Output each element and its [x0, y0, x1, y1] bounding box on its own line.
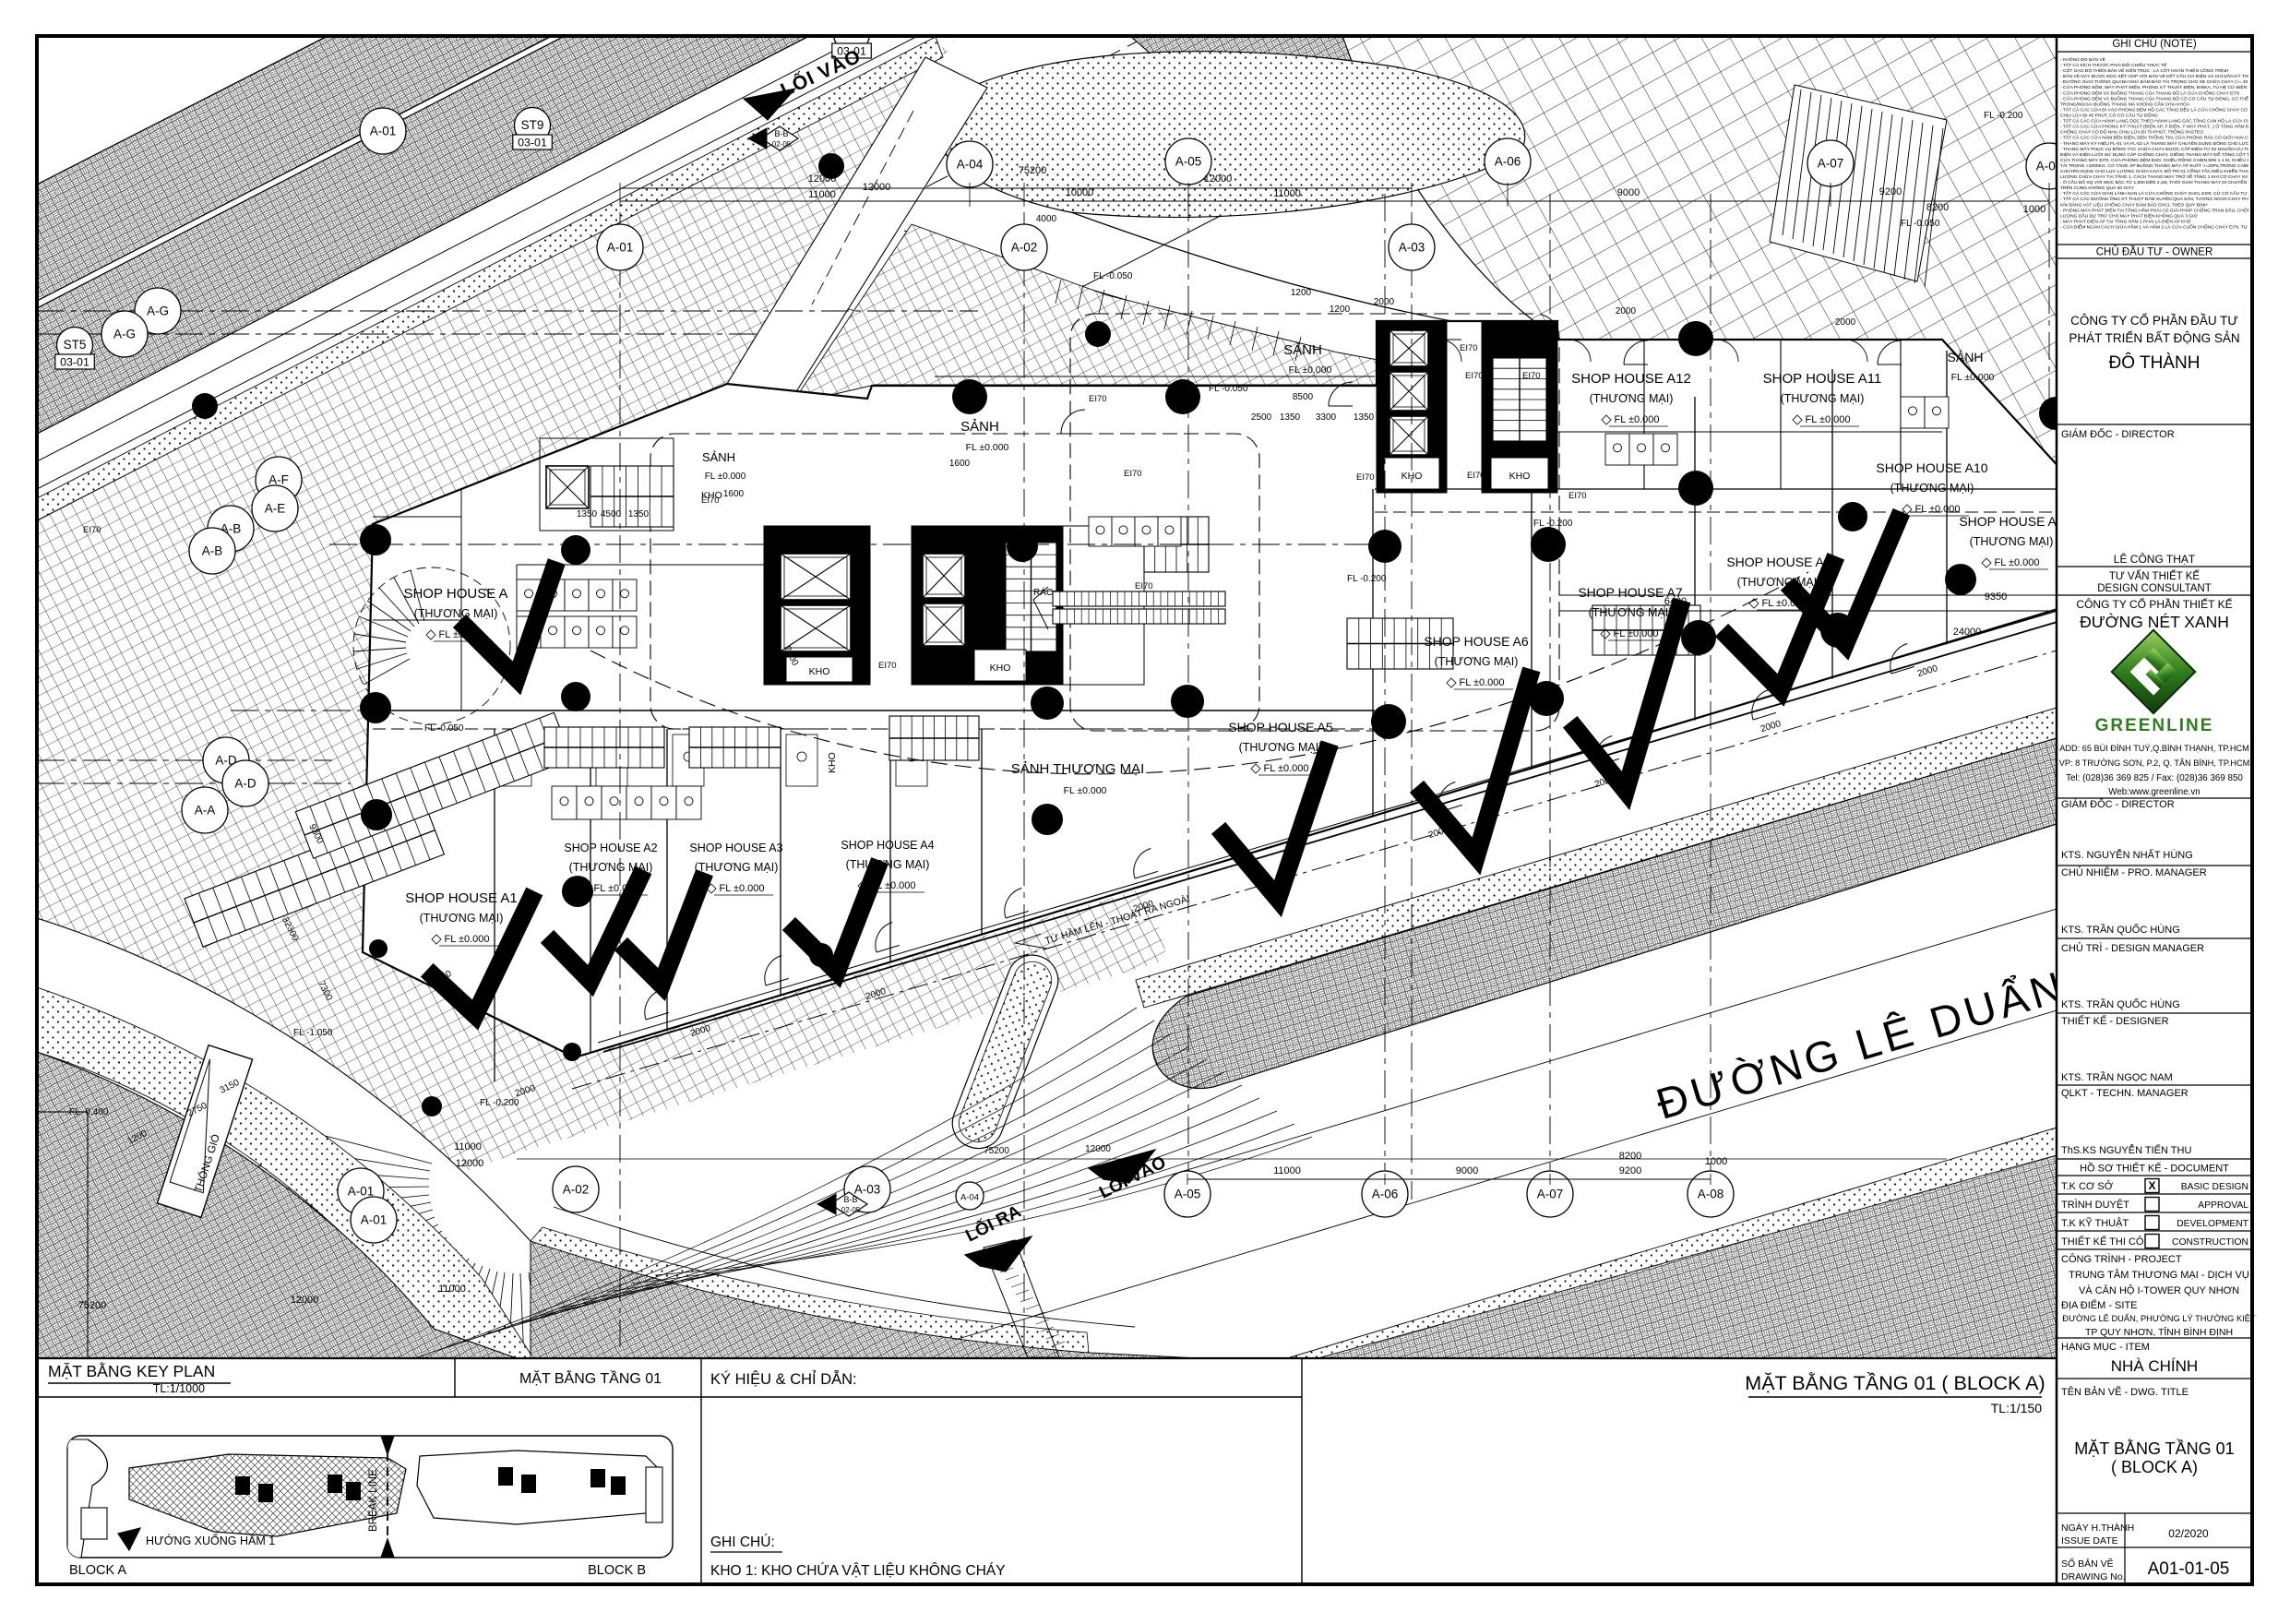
svg-text:10000: 10000 [1066, 187, 1094, 198]
svg-text:MẶT BẰNG TẦNG 01: MẶT BẰNG TẦNG 01 [519, 1369, 662, 1387]
svg-text:KTS. TRẦN NGỌC NAM: KTS. TRẦN NGỌC NAM [2061, 1071, 2173, 1083]
svg-text:KHO: KHO [827, 752, 838, 773]
svg-text:SHOP HOUSE A3: SHOP HOUSE A3 [689, 842, 782, 854]
svg-text:TÊN BẢN VẼ - DWG. TITLE: TÊN BẢN VẼ - DWG. TITLE [2061, 1386, 2189, 1398]
svg-text:A-D: A-D [234, 777, 256, 791]
svg-text:HỒ SƠ THIẾT KẾ - DOCUMENT: HỒ SƠ THIẾT KẾ - DOCUMENT [2080, 1163, 2229, 1175]
svg-text:(THƯƠNG MẠI): (THƯƠNG MẠI) [420, 912, 504, 925]
svg-text:(THƯƠNG MẠI): (THƯƠNG MẠI) [1781, 392, 1865, 405]
svg-text:(THƯƠNG MẠI): (THƯƠNG MẠI) [846, 858, 930, 871]
svg-text:A-05: A-05 [1175, 1188, 1201, 1201]
svg-text:EI70: EI70 [878, 661, 897, 671]
svg-text:2000: 2000 [1616, 306, 1637, 316]
svg-text:A-B: A-B [202, 544, 223, 558]
svg-text:FL ±0.000: FL ±0.000 [1805, 414, 1850, 425]
svg-text:(THƯƠNG MẠI): (THƯƠNG MẠI) [1590, 392, 1674, 405]
svg-text:CÔNG TY CỔ PHẦN ĐẦU TƯ: CÔNG TY CỔ PHẦN ĐẦU TƯ [2070, 314, 2238, 328]
svg-text:SẢNH: SẢNH [960, 419, 999, 435]
svg-text:12000: 12000 [1204, 173, 1233, 185]
svg-text:MẶT BẰNG TẦNG 01: MẶT BẰNG TẦNG 01 [2074, 1439, 2234, 1458]
svg-text:FL ±0.000: FL ±0.000 [1614, 414, 1659, 425]
svg-text:A-01: A-01 [348, 1185, 375, 1199]
svg-text:- TẤT CẢ CÁC CỬA GIAN LÁNH NẠN: - TẤT CẢ CÁC CỬA GIAN LÁNH NẠN LÀ CỬA CH… [2060, 190, 2262, 197]
svg-text:2500: 2500 [1251, 412, 1272, 423]
svg-text:BASIC DESIGN: BASIC DESIGN [2181, 1182, 2248, 1192]
svg-text:03-01: 03-01 [60, 356, 89, 369]
svg-text:A01-01-05: A01-01-05 [2148, 1559, 2230, 1579]
svg-text:A-03: A-03 [854, 1183, 881, 1197]
svg-text:FL -0.050: FL -0.050 [1901, 219, 1940, 229]
svg-text:SHOP HOUSE A: SHOP HOUSE A [403, 586, 507, 602]
svg-text:2000: 2000 [1374, 297, 1395, 307]
svg-text:SHOP HOUSE A1: SHOP HOUSE A1 [405, 890, 517, 906]
svg-text:GHI CHÚ:: GHI CHÚ: [710, 1534, 775, 1550]
svg-text:ADD: 65 BÙI ĐÌNH TUÝ,Q.BÌNH TH: ADD: 65 BÙI ĐÌNH TUÝ,Q.BÌNH THẠNH, TP.HC… [2059, 744, 2249, 753]
svg-text:CHỊU LỬA ĐI 45 PHÚT, CÓ CƠ CẤU: CHỊU LỬA ĐI 45 PHÚT, CÓ CƠ CẤU TỰ ĐỘNG [2060, 113, 2158, 119]
svg-text:EI70: EI70 [1135, 581, 1153, 591]
svg-text:TP QUY NHƠN, TỈNH BÌNH ĐỊNH: TP QUY NHƠN, TỈNH BÌNH ĐỊNH [2085, 1326, 2233, 1338]
svg-text:9000: 9000 [1617, 187, 1640, 198]
svg-text:SẢNH: SẢNH [702, 450, 735, 464]
svg-text:A-01: A-01 [361, 1213, 388, 1227]
svg-text:02-05: 02-05 [772, 140, 792, 149]
svg-text:FL -0.200: FL -0.200 [1533, 519, 1573, 529]
svg-text:CHỦ ĐẦU TƯ - OWNER: CHỦ ĐẦU TƯ - OWNER [2096, 246, 2213, 258]
svg-text:- TẤT CẢ KÍCH THƯỚC PHẢI ĐỐI C: - TẤT CẢ KÍCH THƯỚC PHẢI ĐỐI CHIẾU THỰC … [2060, 62, 2167, 68]
svg-text:FL ±0.000: FL ±0.000 [705, 472, 746, 482]
svg-text:FL ±0.000: FL ±0.000 [444, 934, 489, 945]
svg-text:NGÀY H.THÀNH: NGÀY H.THÀNH [2061, 1522, 2134, 1534]
svg-text:KHO: KHO [701, 490, 722, 501]
svg-text:BLOCK B: BLOCK B [588, 1563, 646, 1578]
svg-text:9000: 9000 [1456, 1165, 1478, 1176]
svg-text:EI70: EI70 [1089, 394, 1107, 404]
svg-text:APPROVAL: APPROVAL [2198, 1200, 2248, 1211]
svg-text:ĐƯỜNG LÊ DUẨN, PHƯỜNG LÝ THƯỜN: ĐƯỜNG LÊ DUẨN, PHƯỜNG LÝ THƯỜNG KIỆT [2062, 1313, 2256, 1323]
svg-text:EI70: EI70 [1465, 371, 1484, 381]
svg-text:1350: 1350 [577, 509, 598, 519]
svg-text:EI70: EI70 [1568, 491, 1587, 501]
svg-text:FL -0.050: FL -0.050 [1209, 384, 1248, 394]
svg-text:EI70: EI70 [1356, 472, 1375, 483]
svg-text:FL ±0.000: FL ±0.000 [1289, 364, 1332, 376]
svg-text:HẠNG MỤC - ITEM: HẠNG MỤC - ITEM [2061, 1342, 2150, 1353]
svg-text:(THƯƠNG MẠI): (THƯƠNG MẠI) [1890, 482, 1974, 495]
svg-text:TƯ VẤN THIẾT KẾ: TƯ VẤN THIẾT KẾ [2109, 570, 2201, 582]
svg-text:(THƯƠNG MẠI): (THƯƠNG MẠI) [1589, 606, 1673, 619]
svg-text:A-G: A-G [147, 304, 169, 318]
svg-text:KHO: KHO [1509, 471, 1531, 482]
svg-text:CHỦ NHIỆM - PRO. MANAGER: CHỦ NHIỆM - PRO. MANAGER [2061, 866, 2207, 878]
svg-text:SHOP HOUSE A6: SHOP HOUSE A6 [1424, 634, 1529, 649]
svg-text:1600: 1600 [949, 459, 971, 469]
svg-text:A-02: A-02 [1011, 241, 1038, 255]
svg-text:EI70: EI70 [1467, 471, 1485, 481]
svg-text:TRUNG TÂM THƯƠNG MẠI - DỊCH VỤ: TRUNG TÂM THƯƠNG MẠI - DỊCH VỤ [2069, 1269, 2249, 1281]
svg-text:Tel: (028)36 369 825 / Fax: (0: Tel: (028)36 369 825 / Fax: (028)36 369 … [2066, 773, 2243, 783]
svg-text:A-06: A-06 [1372, 1188, 1399, 1201]
svg-text:FL ±0.000: FL ±0.000 [1613, 628, 1658, 639]
svg-text:(THƯƠNG MẠI): (THƯƠNG MẠI) [1737, 576, 1821, 589]
svg-text:CÔNG TRÌNH - PROJECT: CÔNG TRÌNH - PROJECT [2061, 1253, 2182, 1265]
svg-text:SHOP HOUSE A10: SHOP HOUSE A10 [1876, 460, 1987, 475]
svg-text:A-02: A-02 [563, 1183, 590, 1197]
svg-text:12000: 12000 [863, 182, 891, 193]
svg-text:02/2020: 02/2020 [2168, 1527, 2209, 1540]
svg-text:1350: 1350 [1280, 412, 1301, 423]
svg-text:02-05: 02-05 [841, 1206, 861, 1214]
svg-text:VÀ CĂN HỘ I-TOWER QUY NHƠN: VÀ CĂN HỘ I-TOWER QUY NHƠN [2079, 1284, 2239, 1296]
svg-text:ĐÔ THÀNH: ĐÔ THÀNH [2109, 352, 2201, 373]
svg-text:4000: 4000 [1036, 214, 1057, 224]
svg-text:EI70: EI70 [83, 525, 101, 535]
svg-text:9200: 9200 [1879, 186, 1902, 197]
svg-text:Web:www.greenline.vn: Web:www.greenline.vn [2108, 787, 2200, 797]
svg-text:FL -0.200: FL -0.200 [1347, 574, 1387, 584]
svg-text:( BLOCK A): ( BLOCK A) [2111, 1458, 2198, 1476]
svg-text:FL ±0.000: FL ±0.000 [870, 880, 915, 891]
svg-text:(THƯƠNG MẠI): (THƯƠNG MẠI) [695, 861, 779, 874]
svg-text:11000: 11000 [1273, 1165, 1301, 1176]
svg-text:A-03: A-03 [1399, 241, 1425, 255]
svg-text:FL ±0.000: FL ±0.000 [593, 883, 638, 894]
svg-text:ĐỊA ĐIỂM - SITE: ĐỊA ĐIỂM - SITE [2061, 1299, 2138, 1311]
svg-text:(THƯƠNG MẠI): (THƯƠNG MẠI) [1970, 535, 2054, 548]
svg-text:1350: 1350 [1354, 412, 1375, 423]
svg-text:SHOP HOUSE A5: SHOP HOUSE A5 [1228, 720, 1333, 734]
svg-text:FL -0.050: FL -0.050 [424, 723, 464, 734]
svg-text:BREAK LINE: BREAK LINE [368, 1469, 379, 1532]
svg-text:SHOP HOUSE A12: SHOP HOUSE A12 [1571, 371, 1691, 387]
svg-text:THIẾT KẾ THI CÔNG: THIẾT KẾ THI CÔNG [2061, 1236, 2159, 1248]
svg-text:8500: 8500 [1293, 392, 1314, 402]
svg-text:- ĐƯỜNG GIAO THÔNG QUANH NHÀ Đ: - ĐƯỜNG GIAO THÔNG QUANH NHÀ ĐẢM BẢO TẢI… [2060, 78, 2260, 85]
svg-text:FL ±0.000: FL ±0.000 [1761, 598, 1807, 609]
svg-text:A-04: A-04 [960, 1193, 979, 1203]
svg-text:SẢNH THƯƠNG MẠI: SẢNH THƯƠNG MẠI [1011, 761, 1145, 777]
svg-text:KTS. TRẦN QUỐC HÙNG: KTS. TRẦN QUỐC HÙNG [2061, 923, 2180, 936]
svg-text:B-B: B-B [843, 1195, 857, 1204]
svg-text:ST9: ST9 [521, 118, 544, 132]
svg-text:- KHÔNG ĐO BẢN VẼ: - KHÔNG ĐO BẢN VẼ [2060, 56, 2106, 63]
svg-text:FL ±0.000: FL ±0.000 [438, 629, 483, 640]
svg-text:GHI CHÚ (NOTE): GHI CHÚ (NOTE) [2112, 38, 2197, 50]
svg-text:ST5: ST5 [64, 338, 87, 352]
svg-text:FL -1.050: FL -1.050 [293, 1028, 333, 1038]
svg-text:KÝ HIỆU & CHỈ DẪN:: KÝ HIỆU & CHỈ DẪN: [710, 1370, 857, 1388]
svg-text:A-08: A-08 [1698, 1188, 1724, 1201]
svg-text:A-05: A-05 [1175, 155, 1202, 169]
svg-text:12000: 12000 [291, 1295, 319, 1306]
svg-text:FL ±0.000: FL ±0.000 [1064, 785, 1107, 796]
svg-text:FL ±0.000: FL ±0.000 [1263, 763, 1308, 774]
svg-text:MẶT BẰNG KEY PLAN: MẶT BẰNG KEY PLAN [48, 1361, 215, 1380]
svg-text:12000: 12000 [456, 1158, 484, 1169]
svg-text:A-07: A-07 [1537, 1188, 1564, 1201]
svg-text:FL ±0.000: FL ±0.000 [1459, 677, 1504, 688]
svg-text:DESIGN CONSULTANT: DESIGN CONSULTANT [2097, 583, 2212, 594]
svg-text:1200: 1200 [1291, 288, 1312, 298]
svg-text:A-06: A-06 [1495, 155, 1521, 169]
svg-text:KTS. TRẦN QUỐC HÙNG: KTS. TRẦN QUỐC HÙNG [2061, 997, 2180, 1010]
svg-text:FL ±0.000: FL ±0.000 [1951, 372, 1995, 383]
svg-text:A-01: A-01 [607, 241, 634, 255]
svg-text:TL:1/1000: TL:1/1000 [153, 1382, 205, 1395]
svg-text:QLKT - TECHN. MANAGER: QLKT - TECHN. MANAGER [2061, 1088, 2189, 1099]
svg-text:2000: 2000 [1835, 317, 1856, 328]
svg-text:8200: 8200 [1619, 1151, 1641, 1162]
svg-text:EI70: EI70 [1522, 371, 1541, 381]
svg-text:1000: 1000 [1705, 1156, 1727, 1167]
svg-text:75200: 75200 [78, 1300, 107, 1311]
svg-text:1000: 1000 [2023, 204, 2045, 215]
svg-text:SHOP HOUSE A8: SHOP HOUSE A8 [1726, 555, 1831, 569]
svg-text:11000: 11000 [808, 189, 836, 200]
svg-text:CÔNG TY CỔ PHẦN THIẾT KẾ: CÔNG TY CỔ PHẦN THIẾT KẾ [2076, 597, 2232, 611]
svg-text:FL ±0.000: FL ±0.000 [719, 883, 764, 894]
svg-text:CHỦ TRÌ - DESIGN MANAGER: CHỦ TRÌ - DESIGN MANAGER [2061, 942, 2204, 954]
svg-text:CHỐNG CHÁY CÓ ĐỘ NHẠ CHỊU LỬA: CHỐNG CHÁY CÓ ĐỘ NHẠ CHỊU LỬA ĐI 70 PHÚT… [2060, 129, 2203, 136]
svg-text:TRÌNH DUYỆT: TRÌNH DUYỆT [2061, 1199, 2129, 1211]
svg-text:FL ±0.000: FL ±0.000 [1994, 557, 2039, 568]
svg-text:(THƯƠNG MẠI): (THƯƠNG MẠI) [569, 861, 653, 874]
svg-text:ĐƯỜNG NÉT XANH: ĐƯỜNG NÉT XANH [2080, 612, 2229, 631]
svg-text:B-B: B-B [774, 129, 788, 138]
svg-text:12000: 12000 [1085, 1144, 1111, 1154]
svg-text:FL ±0.000: FL ±0.000 [1914, 504, 1960, 515]
svg-text:(THƯƠNG MẠI): (THƯƠNG MẠI) [1435, 655, 1519, 668]
svg-text:GIÁM ĐỐC - DIRECTOR: GIÁM ĐỐC - DIRECTOR [2061, 797, 2175, 810]
svg-text:PHÁT TRIỂN BẤT ĐỘNG SẢN: PHÁT TRIỂN BẤT ĐỘNG SẢN [2069, 331, 2239, 345]
svg-text:MẶT BẰNG TẦNG 01 ( BLOCK A): MẶT BẰNG TẦNG 01 ( BLOCK A) [1745, 1371, 2045, 1394]
svg-text:SHOP HOUSE A11: SHOP HOUSE A11 [1763, 371, 1882, 387]
svg-text:SHOP HOUSE A9: SHOP HOUSE A9 [1959, 514, 2064, 529]
svg-text:T.K KỸ THUẬT: T.K KỸ THUẬT [2061, 1217, 2129, 1229]
svg-text:9200: 9200 [1619, 1165, 1641, 1176]
svg-text:RÁC: RÁC [1033, 586, 1053, 598]
svg-text:EI70: EI70 [1460, 343, 1478, 353]
svg-text:(THƯƠNG MẠI): (THƯƠNG MẠI) [414, 607, 498, 620]
svg-text:TRONG/NGOÀI BUỒNG THANG MÀ KH: TRONG/NGOÀI BUỒNG THANG MÀ KHÔNG CẦN CHÌ… [2060, 101, 2190, 107]
svg-text:T.K CƠ SỞ: T.K CƠ SỞ [2061, 1180, 2114, 1192]
svg-text:NHÀ CHÍNH: NHÀ CHÍNH [2111, 1357, 2198, 1375]
svg-text:FL -0.400: FL -0.400 [69, 1107, 109, 1117]
svg-text:KHO: KHO [809, 666, 830, 677]
svg-text:VP: 8 TRƯỜNG SƠN, P.2, Q. TÂN: VP: 8 TRƯỜNG SƠN, P.2, Q. TÂN BÌNH, TP.H… [2059, 758, 2250, 768]
svg-text:SỐ BẢN VẼ: SỐ BẢN VẼ [2061, 1557, 2114, 1570]
svg-text:A-A: A-A [195, 804, 216, 818]
svg-text:KHO: KHO [990, 663, 1011, 674]
svg-text:ISSUE DATE: ISSUE DATE [2061, 1535, 2118, 1546]
svg-text:11000: 11000 [454, 1141, 482, 1152]
svg-text:1600: 1600 [723, 489, 745, 499]
svg-text:SHOP HOUSE A2: SHOP HOUSE A2 [564, 842, 657, 854]
svg-text:A-01: A-01 [370, 125, 397, 138]
svg-text:GREENLINE: GREENLINE [2095, 716, 2214, 735]
svg-text:9350: 9350 [1985, 591, 2007, 603]
svg-text:SHOP HOUSE A7: SHOP HOUSE A7 [1578, 585, 1683, 600]
svg-text:03-01: 03-01 [518, 137, 547, 149]
svg-text:DEVELOPMENT: DEVELOPMENT [2177, 1219, 2249, 1229]
svg-text:A-E: A-E [265, 502, 286, 516]
svg-text:FL ±0.000: FL ±0.000 [966, 442, 1009, 453]
svg-text:A-07: A-07 [1818, 157, 1844, 171]
svg-text:11000: 11000 [438, 1284, 466, 1295]
svg-text:GIÁM ĐỐC - DIRECTOR: GIÁM ĐỐC - DIRECTOR [2061, 427, 2175, 440]
svg-text:THIẾT KẾ - DESIGNER: THIẾT KẾ - DESIGNER [2061, 1015, 2169, 1027]
svg-text:1350: 1350 [628, 509, 650, 519]
svg-text:EI70: EI70 [1124, 469, 1142, 479]
svg-text:75200: 75200 [984, 1146, 1009, 1156]
svg-text:FL -0.050: FL -0.050 [1093, 271, 1133, 281]
svg-text:1200: 1200 [1330, 304, 1351, 315]
svg-text:SẢNH: SẢNH [1948, 350, 1984, 364]
svg-text:3300: 3300 [1316, 412, 1337, 423]
svg-text:SẢNH: SẢNH [1283, 342, 1322, 358]
svg-text:4500: 4500 [601, 509, 622, 519]
svg-text:11000: 11000 [1273, 188, 1301, 199]
svg-text:KHO 1: KHO CHỨA VẬT LIỆU KHÔNG: KHO 1: KHO CHỨA VẬT LIỆU KHÔNG CHÁY [710, 1563, 1006, 1579]
svg-text:A-04: A-04 [957, 158, 984, 172]
svg-text:75200: 75200 [1019, 165, 1047, 176]
svg-text:KTS. NGUYỄN NHẤT HÙNG: KTS. NGUYỄN NHẤT HÙNG [2061, 849, 2193, 861]
svg-text:TL:1/150: TL:1/150 [1991, 1401, 2042, 1415]
svg-text:ThS.KS NGUYỄN TIẾN THU: ThS.KS NGUYỄN TIẾN THU [2061, 1144, 2191, 1156]
svg-text:DRAWING No.: DRAWING No. [2061, 1571, 2126, 1582]
svg-text:FL -0.200: FL -0.200 [1984, 111, 2023, 121]
svg-text:X: X [2148, 1179, 2155, 1192]
svg-text:FL -0.200: FL -0.200 [480, 1098, 519, 1108]
svg-text:SHOP HOUSE A4: SHOP HOUSE A4 [841, 839, 934, 852]
svg-text:LÊ CÔNG THẠT: LÊ CÔNG THẠT [2114, 552, 2196, 566]
svg-text:A-G: A-G [113, 328, 136, 341]
svg-text:(THƯƠNG MẠI): (THƯƠNG MẠI) [1239, 741, 1323, 754]
svg-text:8200: 8200 [1926, 202, 1949, 213]
svg-text:HƯỚNG XUỐNG HẦM 1: HƯỚNG XUỐNG HẦM 1 [146, 1534, 275, 1547]
svg-text:CONSTRUCTION: CONSTRUCTION [2172, 1237, 2248, 1248]
svg-text:BLOCK A: BLOCK A [69, 1563, 126, 1578]
svg-text:LƯỢNG CHỮA CHÁY TẠI TẦNG 1, CÁ: LƯỢNG CHỮA CHÁY TẠI TẦNG 1, CÁCH THANG M… [2060, 173, 2259, 180]
svg-text:24000: 24000 [1953, 627, 1982, 638]
svg-text:12000: 12000 [808, 173, 837, 185]
svg-text:A-F: A-F [268, 473, 289, 487]
